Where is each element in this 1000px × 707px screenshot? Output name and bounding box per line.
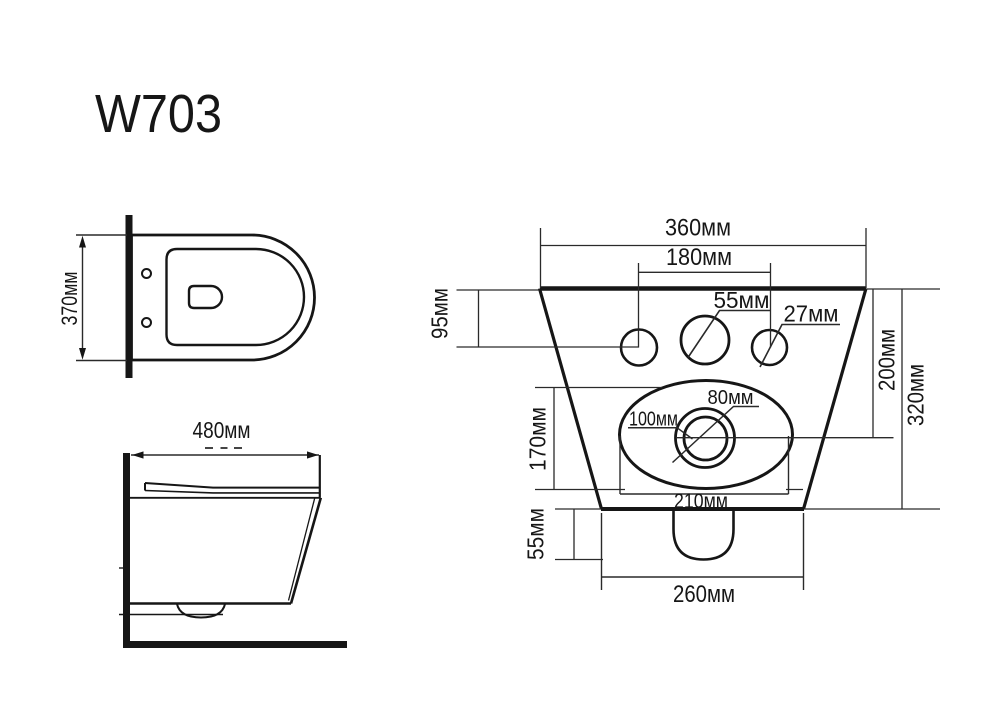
technical-drawing-sheet: W703 370мм 480мм <box>0 0 1000 707</box>
top-view: 370мм <box>57 215 315 378</box>
dim-label-bolt-spacing: 180мм <box>666 244 732 271</box>
dim-label-recess-width: 210мм <box>674 490 728 513</box>
dimension-bolt-hole-27: 27мм <box>760 301 840 368</box>
outlet-inner-circle <box>684 417 727 460</box>
drain-stub <box>674 511 734 560</box>
drain-trap-curve <box>177 604 225 618</box>
dimension-outlet-outer-100: 100мм <box>628 409 693 440</box>
seat-outline <box>167 249 305 345</box>
side-view: 480мм <box>119 417 347 648</box>
dim-label-outlet-inner: 80мм <box>708 387 754 409</box>
dimension-holes-offset-95: 95мм <box>427 288 640 347</box>
dim-label-width-bottom: 260мм <box>673 581 735 608</box>
drawing-canvas: W703 370мм 480мм <box>0 0 1000 707</box>
dim-label-overall-height: 320мм <box>903 364 929 426</box>
dim-label-outlet-center: 200мм <box>874 329 900 391</box>
dim-label-depth: 370мм <box>57 272 82 326</box>
dim-label-recess-height: 170мм <box>525 407 551 471</box>
dim-label-length: 480мм <box>193 417 251 443</box>
dim-label-outlet-outer: 100мм <box>629 409 678 431</box>
dim-label-drain-depth: 55мм <box>523 508 549 560</box>
bowl-detail-outline <box>189 286 222 308</box>
dimension-inlet-55: 55мм <box>688 287 771 358</box>
rear-view: 360мм 180мм 55мм 27мм 95мм 170мм <box>427 215 941 609</box>
dim-label-bolt-hole: 27мм <box>784 301 839 327</box>
dim-label-inlet: 55мм <box>714 287 770 313</box>
dimension-length-480 <box>131 451 319 458</box>
dim-label-holes-offset: 95мм <box>427 288 453 339</box>
mounting-hole-top <box>142 269 151 278</box>
oval-recess <box>620 381 793 489</box>
bowl-slant-outer <box>291 498 321 604</box>
dimension-depth-370: 370мм <box>57 235 127 361</box>
dimension-outlet-inner-80: 80мм <box>673 387 760 463</box>
dimension-recess-height-170: 170мм <box>525 388 804 490</box>
mounting-hole-bottom <box>142 318 151 327</box>
dim-label-width-top: 360мм <box>665 215 731 242</box>
toilet-profile <box>119 455 321 618</box>
dimension-drain-depth-55: 55мм <box>523 508 604 560</box>
bowl-slant-inner <box>289 498 315 601</box>
model-number: W703 <box>95 84 222 144</box>
